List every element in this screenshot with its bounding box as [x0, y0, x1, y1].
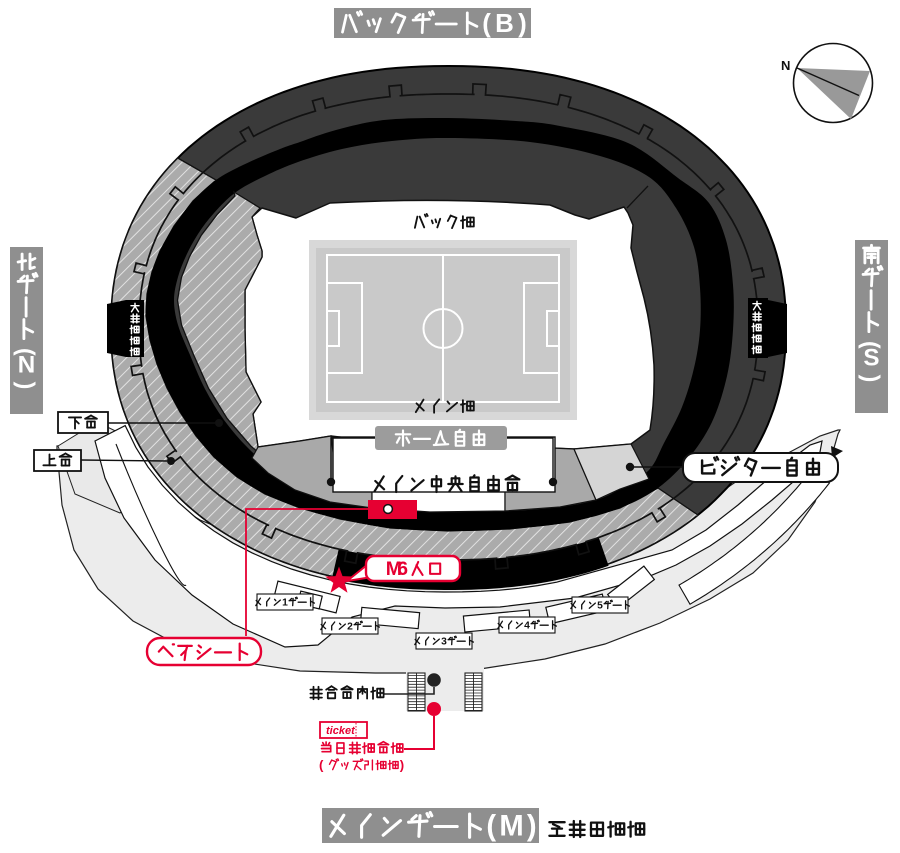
svg-text:5: 5: [597, 600, 603, 611]
svg-text:3: 3: [441, 636, 447, 647]
svg-text:2: 2: [347, 621, 353, 632]
svg-text:(B): (B): [482, 10, 527, 38]
svg-text:(: (: [319, 757, 324, 772]
svg-text:): ): [400, 757, 404, 772]
svg-text:): ): [14, 382, 40, 390]
svg-text:4: 4: [524, 620, 530, 631]
svg-text:1: 1: [282, 597, 288, 608]
svg-text:): ): [859, 375, 885, 383]
svg-text:M6: M6: [386, 558, 409, 580]
svg-text:ticket: ticket: [326, 725, 356, 737]
svg-text:N: N: [781, 58, 790, 73]
svg-text:(M): (M): [486, 811, 536, 843]
svg-text:N: N: [18, 352, 35, 379]
svg-text:S: S: [863, 345, 879, 372]
